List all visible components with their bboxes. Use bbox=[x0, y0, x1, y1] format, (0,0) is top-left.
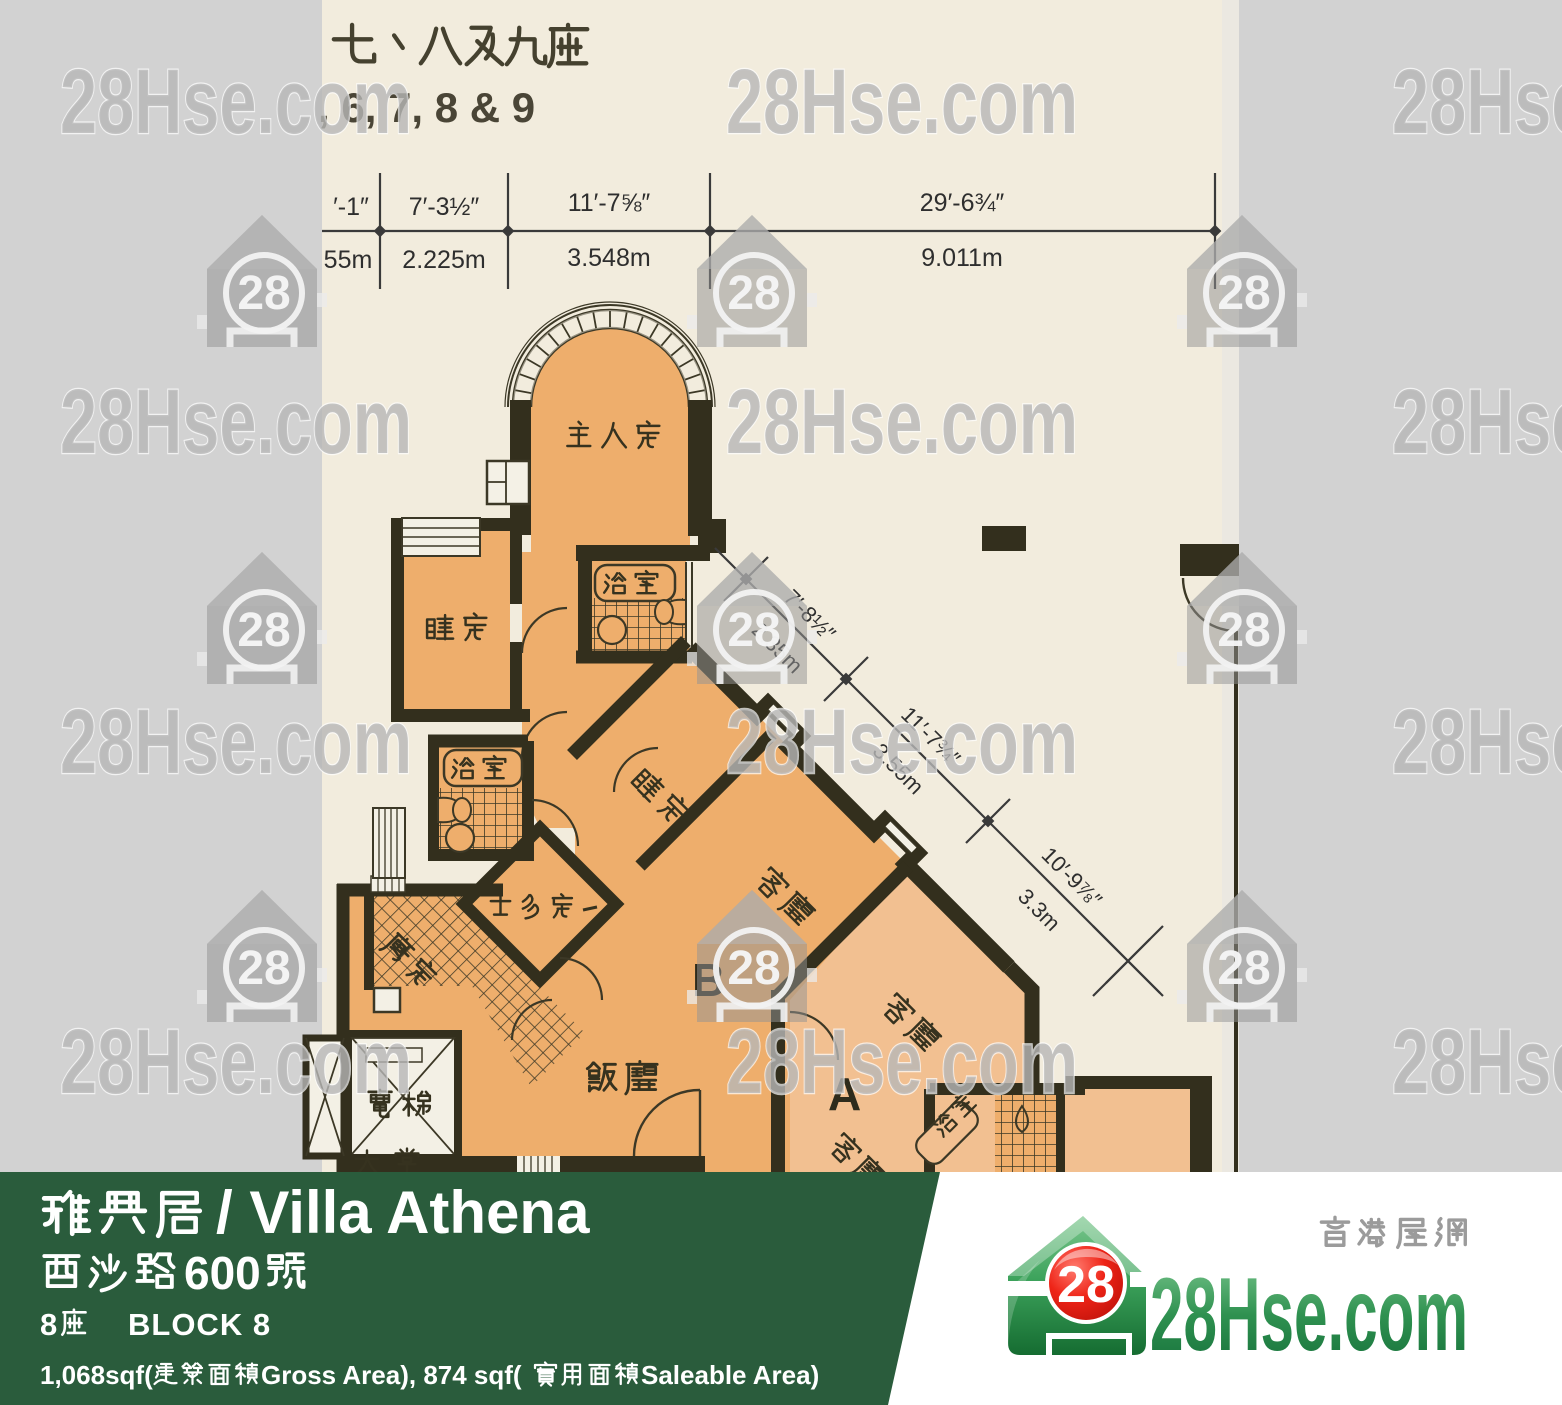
svg-text:′-1″: ′-1″ bbox=[333, 193, 369, 221]
svg-text:2.225m: 2.225m bbox=[402, 246, 485, 274]
svg-text:28: 28 bbox=[1217, 942, 1270, 995]
svg-text:11′-7⅝″: 11′-7⅝″ bbox=[568, 189, 651, 217]
svg-text:28Hse.com: 28Hse.com bbox=[1150, 1257, 1468, 1373]
svg-text:3.548m: 3.548m bbox=[567, 244, 650, 272]
svg-text:8: 8 bbox=[40, 1307, 57, 1342]
svg-text:28: 28 bbox=[237, 604, 290, 657]
svg-text:1,068sqf(: 1,068sqf( bbox=[40, 1360, 153, 1390]
svg-text:Saleable Area): Saleable Area) bbox=[641, 1360, 819, 1390]
svg-text:28: 28 bbox=[727, 604, 780, 657]
svg-text:28: 28 bbox=[727, 267, 780, 320]
svg-text:28Hse.com: 28Hse.com bbox=[726, 51, 1078, 153]
svg-text:28Hse.com: 28Hse.com bbox=[1392, 371, 1562, 473]
svg-text:28Hse.com: 28Hse.com bbox=[726, 1011, 1078, 1113]
svg-text:28: 28 bbox=[237, 267, 290, 320]
svg-text:28Hse.com: 28Hse.com bbox=[60, 1011, 412, 1113]
svg-text:28Hse.com: 28Hse.com bbox=[1392, 691, 1562, 793]
svg-text:28Hse.com: 28Hse.com bbox=[1392, 51, 1562, 153]
svg-text:29′-6¾″: 29′-6¾″ bbox=[920, 189, 1005, 217]
svg-text:28: 28 bbox=[1217, 267, 1270, 320]
svg-text:28Hse.com: 28Hse.com bbox=[60, 51, 412, 153]
svg-text:55m: 55m bbox=[324, 246, 373, 274]
svg-text:28: 28 bbox=[727, 942, 780, 995]
svg-text:28Hse.com: 28Hse.com bbox=[60, 371, 412, 473]
svg-text:BLOCK 8: BLOCK 8 bbox=[128, 1307, 271, 1342]
svg-text:600: 600 bbox=[184, 1247, 261, 1299]
svg-text:9.011m: 9.011m bbox=[921, 244, 1003, 272]
svg-text:28Hse.com: 28Hse.com bbox=[1392, 1011, 1562, 1113]
svg-text:28: 28 bbox=[237, 942, 290, 995]
svg-text:28Hse.com: 28Hse.com bbox=[60, 691, 412, 793]
svg-text:28Hse.com: 28Hse.com bbox=[726, 691, 1078, 793]
svg-text:/ Villa Athena: / Villa Athena bbox=[216, 1179, 590, 1246]
svg-text:7′-3½″: 7′-3½″ bbox=[409, 193, 480, 221]
svg-text:28: 28 bbox=[1217, 604, 1270, 657]
svg-text:Gross Area), 874 sqf(: Gross Area), 874 sqf( bbox=[261, 1360, 522, 1390]
svg-text:28: 28 bbox=[1057, 1256, 1115, 1314]
svg-text:28Hse.com: 28Hse.com bbox=[726, 371, 1078, 473]
